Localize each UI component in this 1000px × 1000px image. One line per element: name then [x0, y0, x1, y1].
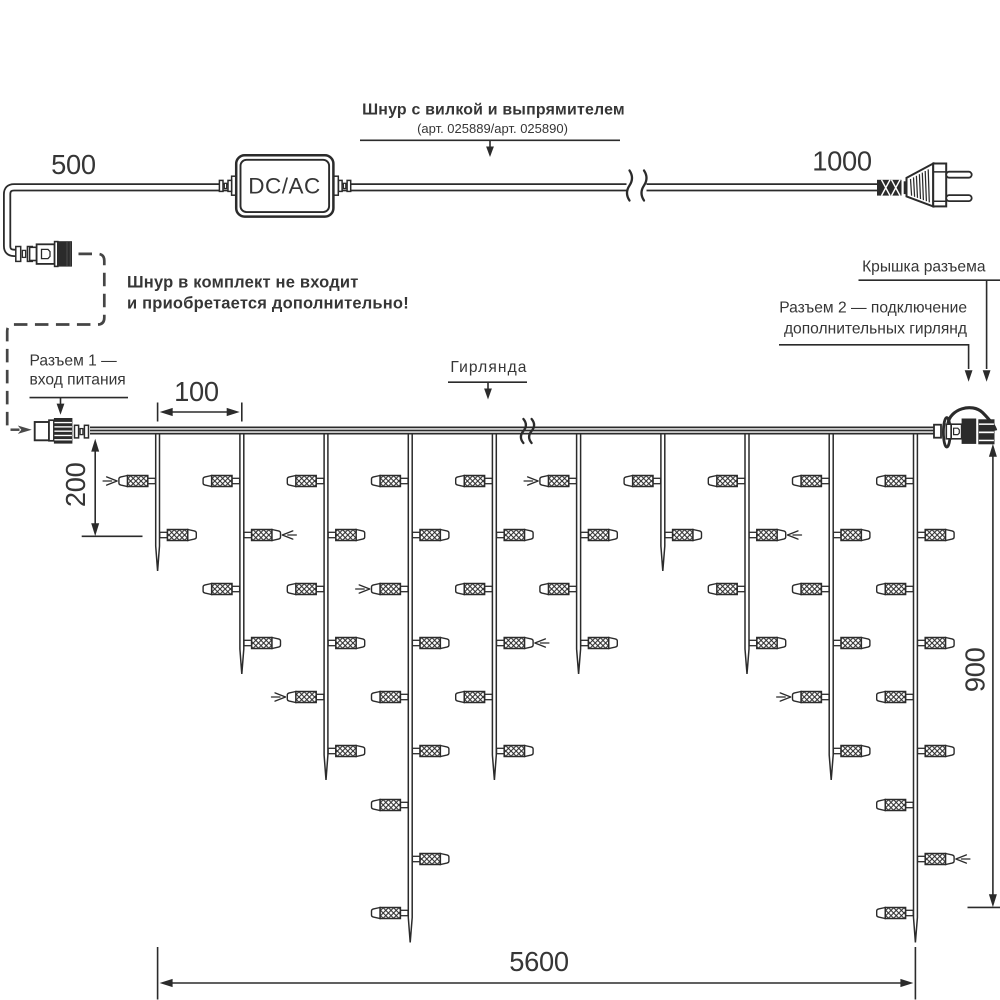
svg-text:Шнур в комплект не входит: Шнур в комплект не входит — [127, 273, 359, 291]
svg-text:и приобретается дополнительно!: и приобретается дополнительно! — [127, 295, 409, 313]
svg-text:(арт. 025889/арт. 025890): (арт. 025889/арт. 025890) — [417, 121, 568, 136]
svg-text:вход питания: вход питания — [30, 371, 126, 388]
svg-text:дополнительных гирлянд: дополнительных гирлянд — [784, 320, 967, 337]
svg-text:200: 200 — [60, 462, 91, 507]
svg-text:100: 100 — [174, 376, 219, 407]
svg-text:1000: 1000 — [812, 146, 872, 177]
svg-text:Гирлянда: Гирлянда — [450, 359, 527, 376]
svg-text:900: 900 — [959, 647, 990, 692]
svg-text:Крышка разъема: Крышка разъема — [862, 258, 986, 275]
svg-text:DC/AC: DC/AC — [248, 174, 321, 199]
svg-text:500: 500 — [51, 149, 96, 180]
svg-text:Шнур с вилкой и выпрямителем: Шнур с вилкой и выпрямителем — [362, 102, 625, 119]
svg-text:Разъем 1 —: Разъем 1 — — [30, 352, 118, 369]
svg-text:Разъем 2 — подключение: Разъем 2 — подключение — [779, 299, 967, 316]
svg-text:5600: 5600 — [509, 946, 569, 977]
